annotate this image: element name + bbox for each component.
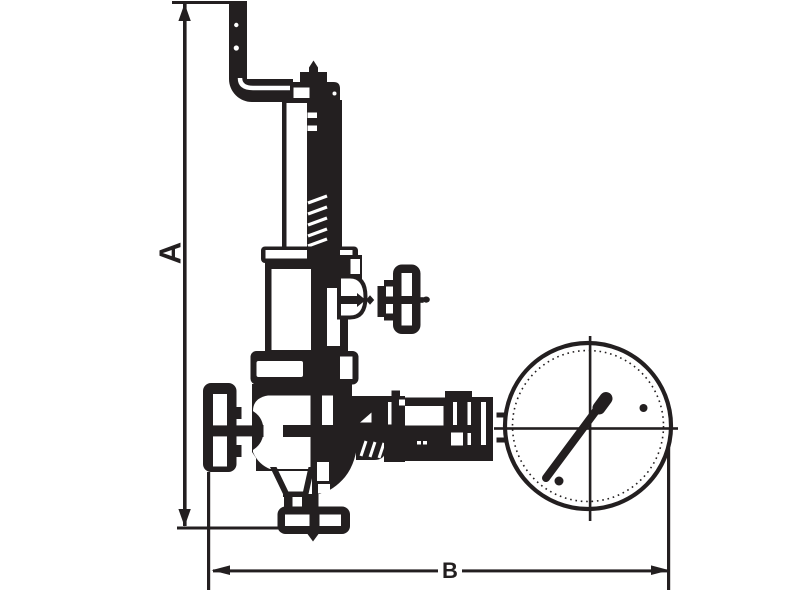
svg-text:A: A: [153, 242, 188, 264]
svg-text:B: B: [442, 558, 458, 583]
